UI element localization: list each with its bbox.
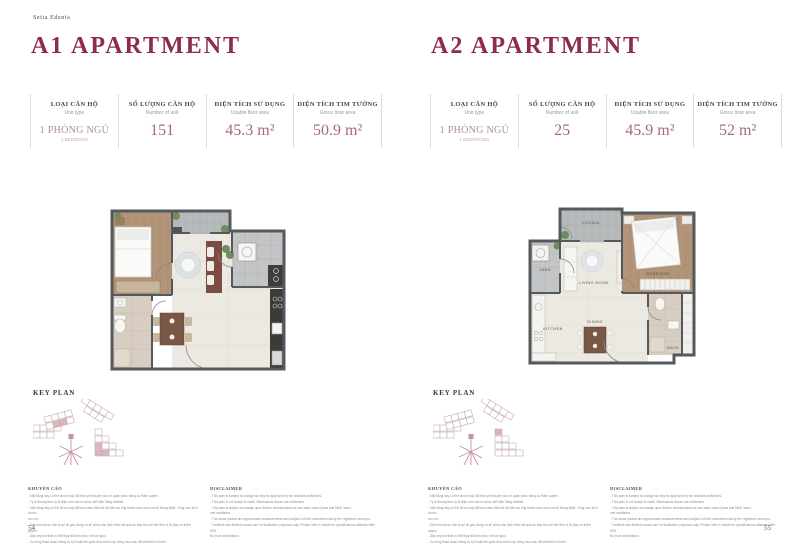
sliding-door [580,240,604,243]
disclaimer-en-title: DISCLAIMER [210,486,380,491]
spec-col-usable-area: DIỆN TÍCH SỬ DỤNG Usable floor area 45.3… [206,94,294,148]
disclaimer-line: for more information. [210,534,380,540]
floor-plan-a2: LOGGIA [522,203,706,375]
nightstand [682,216,692,224]
cluster-left-center [444,410,474,430]
spec-col-unit-count: SỐ LƯỢNG CĂN HỘ Number of unit 151 [118,94,206,148]
page-title-a1: A1 APARTMENT [31,33,241,60]
bed [632,217,681,269]
compass-icon [59,434,83,465]
disclaimer-line: - Mặt bằng này có thể được thay đổi dựa … [428,506,598,518]
shower [114,349,130,367]
bedroom-area: BEDROOM [622,213,694,293]
gross-area-value: 50.9 m² [294,122,381,140]
cluster-bottom-right [495,429,523,456]
disclaimer-line: - The areas quoted are approximate measu… [610,517,780,523]
disclaimers-a2: KHUYẾN CÁO - Mặt bằng này có thể được th… [428,486,780,546]
plant-icon [221,225,229,233]
spec-header-en: Unit type [31,110,118,116]
spec-header-vi: DIỆN TÍCH TIM TƯỜNG [694,101,781,108]
spec-header-vi: DIỆN TÍCH SỬ DỤNG [607,101,694,108]
bedroom-label: BEDROOM [647,272,669,276]
cluster-top-right [477,399,514,426]
spec-header-vi: LOẠI CĂN HỘ [431,101,518,108]
cluster-left-center [44,410,74,430]
plant-icon [561,231,569,239]
key-plan-a2-map [433,399,603,487]
compass-icon [459,434,483,465]
building-blocks [433,399,523,456]
bathroom-area [112,295,152,369]
floor-plan-a1-drawing [106,203,290,375]
key-plan-a1-map [33,399,203,487]
bath-label: BATH [667,346,678,350]
spec-col-unit-count: SỐ LƯỢNG CĂN HỘ Number of unit 25 [518,94,606,148]
spec-header-en: Gross floor area [694,110,781,116]
bathroom-area: BATH [648,293,682,355]
yard-area: YARD [530,241,561,293]
page-number: 54 [28,524,35,532]
unit-type-sub: 1 BEDROOM [31,137,118,142]
disclaimers-a1: KHUYẾN CÁO - Mặt bằng này có thể được th… [28,486,380,546]
armchair-rug [175,252,201,278]
sofa [206,241,222,293]
dining-label: DINING [587,320,603,324]
spec-header-en: Number of unit [519,110,606,116]
loggia-area: LOGGIA [560,209,622,241]
living-room-label: LIVING ROOM [579,281,609,285]
floor-plan-a1 [106,203,290,375]
disclaimer-vi-title: KHUYẾN CÁO [28,486,198,491]
disclaimer-line: - Furniture and finishes shown are for i… [610,523,780,535]
bedroom-area [112,211,172,295]
spec-header-en: Usable floor area [207,110,294,116]
kitchen-label: KITCHEN [543,327,562,331]
loggia-label: LOGGIA [583,221,600,225]
spec-col-usable-area: DIỆN TÍCH SỬ DỤNG Usable floor area 45.9… [606,94,694,148]
spec-header-en: Number of unit [119,110,206,116]
sofa [564,247,577,291]
unit-count-value: 25 [519,122,606,140]
key-plan-a2 [433,399,603,487]
disclaimer-line: - Vui lòng tham khảo thông số kỹ thuật b… [28,540,198,546]
disclaimer-line: - Diện tích được tính là số đo gần đúng … [428,523,598,535]
spec-header-vi: DIỆN TÍCH SỬ DỤNG [207,101,294,108]
shower [650,337,665,352]
building-blocks [33,399,123,456]
closet-strip [682,293,694,355]
spec-header-en: Unit type [431,110,518,116]
bedroom-bench [116,281,160,293]
spec-header-vi: DIỆN TÍCH TIM TƯỜNG [294,101,381,108]
plant-icon [172,212,180,220]
key-plan-a1 [33,399,203,487]
key-plan-title: KEY PLAN [433,389,475,397]
spec-table-a2: LOẠI CĂN HỘ Unit type 1 PHÒNG NGỦ 1 BEDR… [430,94,782,148]
plant-icon [115,213,122,220]
page-title-a2: A2 APARTMENT [431,33,641,60]
cluster-bottom-right [95,429,123,456]
disclaimer-vi: KHUYẾN CÁO - Mặt bằng này có thể được th… [28,486,198,546]
unit-type-value: 1 PHÒNG NGỦ [31,125,118,136]
disclaimer-en-title: DISCLAIMER [610,486,780,491]
kitchen-sink [272,323,282,334]
fridge [272,351,282,365]
brochure-spread: Setia Edenia A1 APARTMENT LOẠI CĂN HỘ Un… [0,0,800,560]
bed [115,227,151,277]
spec-col-gross-area: DIỆN TÍCH TIM TƯỜNG Gross floor area 52 … [693,94,782,148]
sliding-door [190,232,210,235]
disclaimer-line: - Furniture and finishes shown are for i… [210,523,380,535]
floor-plan-a2-drawing: LOGGIA [522,203,706,375]
spec-table-a1: LOẠI CĂN HỘ Unit type 1 PHÒNG NGỦ 1 BEDR… [30,94,382,148]
page-a1: Setia Edenia A1 APARTMENT LOẠI CĂN HỘ Un… [0,0,400,560]
disclaimer-line: - Diện tích được tính là số đo gần đúng … [28,523,198,535]
disclaimer-line: - The areas quoted are approximate measu… [210,517,380,523]
spec-header-vi: SỐ LƯỢNG CĂN HỘ [119,101,206,108]
coffee-table-rug [581,250,603,272]
washing-machine [238,243,256,261]
disclaimer-en: DISCLAIMER - This plan is subject to cha… [610,486,780,546]
unit-type-sub: 1 BEDROOMS [431,137,518,142]
toilet [655,298,665,311]
spec-col-unit-type: LOẠI CĂN HỘ Unit type 1 PHÒNG NGỦ 1 BEDR… [430,94,518,148]
key-plan-title: KEY PLAN [33,389,75,397]
unit-type-value: 1 PHÒNG NGỦ [431,125,518,136]
yard-label: YARD [539,268,551,272]
disclaimer-line: - Vui lòng tham khảo thông số kỹ thuật b… [428,540,598,546]
yard-area [226,231,284,287]
disclaimer-vi-title: KHUYẾN CÁO [428,486,598,491]
balcony-area [172,211,230,233]
gross-area-value: 52 m² [694,122,781,140]
page-a2: A2 APARTMENT LOẠI CĂN HỘ Unit type 1 PHÒ… [400,0,800,560]
usable-area-value: 45.3 m² [207,122,294,140]
washing-machine [532,245,549,261]
brand-name: Setia Edenia [33,15,70,21]
spec-col-unit-type: LOẠI CĂN HỘ Unit type 1 PHÒNG NGỦ 1 BEDR… [30,94,118,148]
toilet [114,315,126,333]
spec-header-en: Usable floor area [607,110,694,116]
plant-icon [222,245,230,253]
spec-header-vi: LOẠI CĂN HỘ [31,101,118,108]
usable-area-value: 45.9 m² [607,122,694,140]
disclaimer-vi: KHUYẾN CÁO - Mặt bằng này có thể được th… [428,486,598,546]
kitchen-area [270,289,284,369]
page-number: 55 [764,524,771,532]
unit-count-value: 151 [119,122,206,140]
disclaimer-en: DISCLAIMER - This plan is subject to cha… [210,486,380,546]
cluster-top-right [77,399,114,426]
sink [668,321,679,329]
disclaimer-line: - Mặt bằng này có thể được thay đổi dựa … [28,506,198,518]
spec-header-en: Gross floor area [294,110,381,116]
spec-header-vi: SỐ LƯỢNG CĂN HỘ [519,101,606,108]
sink [114,298,126,307]
disclaimer-line: for more information. [610,534,780,540]
spec-col-gross-area: DIỆN TÍCH TIM TƯỜNG Gross floor area 50.… [293,94,382,148]
